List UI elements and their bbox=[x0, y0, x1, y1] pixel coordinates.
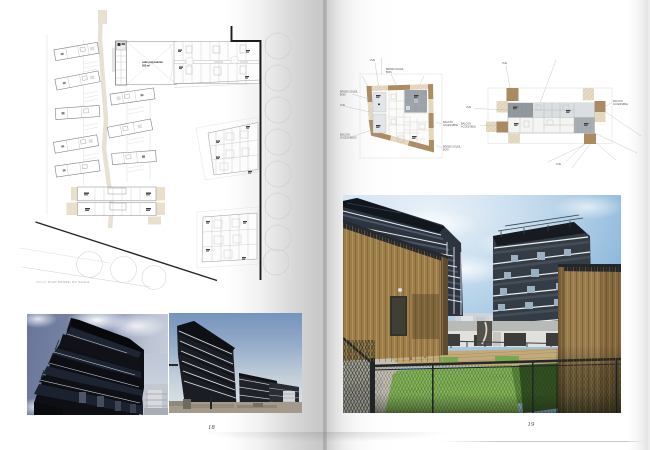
svg-text:ACCESSIBLES: ACCESSIBLES bbox=[340, 137, 357, 140]
svg-text:ACCESSIBLE: ACCESSIBLE bbox=[461, 126, 476, 129]
svg-text:VUE: VUE bbox=[370, 59, 375, 62]
svg-text:BOIS: BOIS bbox=[443, 149, 449, 152]
svg-text:salle polyvalente: salle polyvalente bbox=[142, 60, 163, 64]
svg-text:ACCESSIBLE: ACCESSIBLE bbox=[613, 103, 628, 106]
svg-text:ACCESSIBLE: ACCESSIBLE bbox=[443, 124, 458, 127]
svg-text:BOIS: BOIS bbox=[340, 94, 346, 97]
svg-text:VUE: VUE bbox=[340, 104, 345, 107]
svg-text:VUE: VUE bbox=[556, 163, 561, 166]
svg-text:VUE: VUE bbox=[502, 62, 507, 65]
svg-text:VUE: VUE bbox=[466, 106, 471, 109]
svg-text:BOIS: BOIS bbox=[386, 71, 392, 74]
svg-text:200 m²: 200 m² bbox=[142, 64, 150, 68]
